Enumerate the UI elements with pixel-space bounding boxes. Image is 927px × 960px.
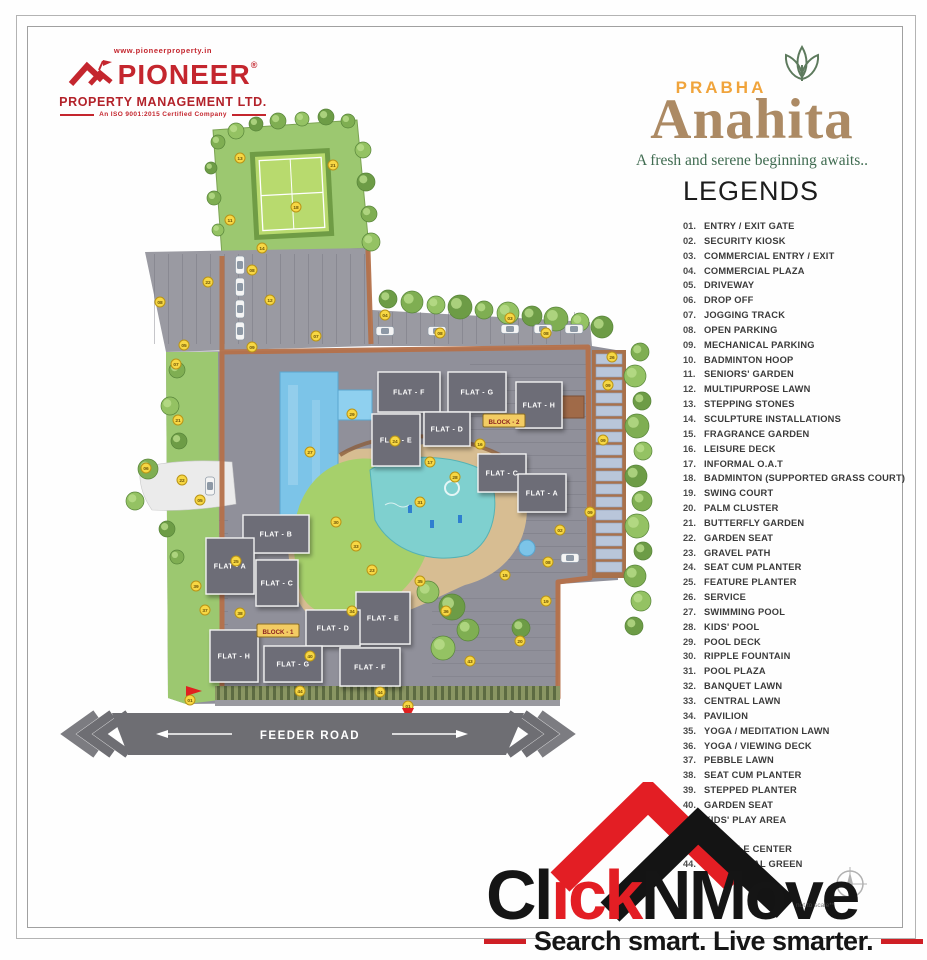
legend-item-label: DROP OFF	[704, 295, 753, 305]
clicknmove-tagline: Search smart. Live smarter.	[480, 926, 927, 957]
pioneer-website: www.pioneerproperty.in	[44, 46, 282, 55]
legend-item-number: 01.	[683, 221, 704, 231]
tree-icon	[159, 521, 175, 537]
flat-label: FLAT - H	[523, 403, 556, 410]
svg-text:31: 31	[417, 500, 423, 506]
flat-label: FLAT - A	[526, 491, 558, 498]
map-marker: 29	[347, 409, 357, 419]
legend-item: 23.GRAVEL PATH	[683, 548, 915, 563]
legend-item-label: LEISURE DECK	[704, 444, 776, 454]
site-plan-poster: www.pioneerproperty.in PIONEER® PROPERTY…	[0, 0, 927, 960]
svg-text:04: 04	[382, 313, 388, 319]
legend-item-label: POOL DECK	[704, 637, 761, 647]
tree-icon	[633, 392, 651, 410]
map-marker: 44	[295, 686, 305, 696]
svg-text:12: 12	[267, 298, 273, 304]
tree-icon	[401, 291, 423, 313]
tree-icon	[457, 619, 479, 641]
legend-item: 28.KIDS' POOL	[683, 622, 915, 637]
map-marker: 38	[235, 608, 245, 618]
tree-icon	[170, 550, 184, 564]
legend-item: 07.JOGGING TRACK	[683, 310, 915, 325]
legends-list: 01.ENTRY / EXIT GATE02.SECURITY KIOSK03.…	[683, 221, 915, 874]
tree-icon	[379, 290, 397, 308]
svg-text:30: 30	[333, 520, 339, 526]
legend-item-label: MULTIPURPOSE LAWN	[704, 384, 811, 394]
building-flat: FLAT - A	[518, 474, 566, 512]
flat-label: FLAT - F	[354, 665, 386, 672]
map-marker: 12	[265, 295, 275, 305]
tree-icon	[624, 365, 646, 387]
legend-item-number: 33.	[683, 696, 704, 706]
building-flat: FLAT - F	[340, 648, 400, 686]
map-marker: 05	[179, 340, 189, 350]
clicknmove-watermark: ClickNMove not to scale** Search smart. …	[480, 780, 927, 960]
legend-item: 17.INFORMAL O.A.T	[683, 459, 915, 474]
pioneer-certification: An ISO 9001:2015 Certified Company	[44, 111, 282, 118]
svg-text:24: 24	[392, 439, 398, 445]
tree-icon	[475, 301, 493, 319]
svg-text:08: 08	[157, 300, 163, 306]
flat-label: FLAT - C	[486, 471, 519, 478]
svg-text:16: 16	[477, 442, 483, 448]
map-marker: 09	[603, 380, 613, 390]
legend-item: 19.SWING COURT	[683, 488, 915, 503]
tree-icon	[362, 233, 380, 251]
map-marker: 09	[585, 507, 595, 517]
map-marker: 22	[203, 277, 213, 287]
tree-icon	[161, 397, 179, 415]
legend-item-label: PALM CLUSTER	[704, 503, 779, 513]
building-flat: FLAT - G	[264, 646, 322, 682]
svg-text:09: 09	[587, 510, 593, 516]
legend-item: 30.RIPPLE FOUNTAIN	[683, 651, 915, 666]
legend-item: 37.PEBBLE LAWN	[683, 755, 915, 770]
map-marker: 33	[351, 541, 361, 551]
legend-item: 21.BUTTERFLY GARDEN	[683, 518, 915, 533]
legend-item: 36.YOGA / VIEWING DECK	[683, 741, 915, 756]
legend-item: 09.MECHANICAL PARKING	[683, 340, 915, 355]
legend-item-number: 32.	[683, 681, 704, 691]
legend-item-number: 07.	[683, 310, 704, 320]
car-icon	[565, 325, 583, 334]
legend-item-label: YOGA / MEDITATION LAWN	[704, 726, 830, 736]
svg-text:09: 09	[600, 438, 606, 444]
legend-item-number: 09.	[683, 340, 704, 350]
map-marker: 44	[375, 687, 385, 697]
legend-item: 08.OPEN PARKING	[683, 325, 915, 340]
tree-icon	[631, 343, 649, 361]
map-marker: 28	[450, 472, 460, 482]
road-chevrons-right	[508, 714, 568, 754]
building-flat: FLAT - E	[356, 592, 410, 644]
map-marker: 19	[541, 596, 551, 606]
legends-panel: LEGENDS 01.ENTRY / EXIT GATE02.SECURITY …	[683, 176, 915, 874]
tree-icon	[357, 173, 375, 191]
map-marker: 08	[541, 328, 551, 338]
legend-item: 31.POOL PLAZA	[683, 666, 915, 681]
tree-icon	[631, 591, 651, 611]
car-icon	[206, 477, 215, 495]
legend-item-label: MECHANICAL PARKING	[704, 340, 815, 350]
map-marker: 08	[435, 328, 445, 338]
svg-text:03: 03	[507, 316, 513, 322]
tree-icon	[295, 112, 309, 126]
svg-text:22: 22	[205, 280, 211, 286]
map-marker: 08	[155, 297, 165, 307]
building-flat: FLAT - D	[424, 412, 470, 446]
tree-icon	[211, 135, 225, 149]
legend-item-label: SEAT CUM PLANTER	[704, 770, 802, 780]
legend-item: 03.COMMERCIAL ENTRY / EXIT	[683, 251, 915, 266]
tree-icon	[212, 224, 224, 236]
svg-text:11: 11	[227, 218, 232, 224]
legend-item: 11.SENIORS' GARDEN	[683, 369, 915, 384]
svg-text:44: 44	[377, 690, 383, 696]
legend-item-label: RIPPLE FOUNTAIN	[704, 651, 791, 661]
map-marker: 02	[555, 525, 565, 535]
tree-icon	[171, 433, 187, 449]
legend-item-number: 20.	[683, 503, 704, 513]
map-marker: 25	[231, 556, 241, 566]
map-marker: 20	[515, 636, 525, 646]
map-marker: 04	[380, 310, 390, 320]
legend-item-number: 05.	[683, 280, 704, 290]
flat-label: FLAT - E	[367, 616, 399, 623]
svg-text:21: 21	[330, 163, 336, 169]
pioneer-house-icon	[68, 56, 114, 93]
svg-text:23: 23	[369, 568, 375, 574]
svg-text:21: 21	[175, 418, 181, 424]
legend-item-number: 38.	[683, 770, 704, 780]
legend-item-number: 06.	[683, 295, 704, 305]
svg-text:14: 14	[259, 246, 265, 252]
legend-item: 15.FRAGRANCE GARDEN	[683, 429, 915, 444]
map-marker: 31	[415, 497, 425, 507]
legend-item-label: SERVICE	[704, 592, 746, 602]
svg-text:18: 18	[293, 205, 299, 211]
tree-icon	[624, 565, 646, 587]
tree-icon	[591, 316, 613, 338]
map-marker: 15	[500, 570, 510, 580]
svg-text:40: 40	[307, 654, 313, 660]
map-marker: 22	[177, 475, 187, 485]
legend-item: 06.DROP OFF	[683, 295, 915, 310]
car-icon	[236, 256, 245, 274]
map-marker: 05	[195, 495, 205, 505]
building-flat: FLAT - G	[448, 372, 506, 412]
tree-icon	[427, 296, 445, 314]
legend-item-label: SCULPTURE INSTALLATIONS	[704, 414, 841, 424]
map-marker: 11	[225, 215, 235, 225]
legend-item-label: GRAVEL PATH	[704, 548, 771, 558]
car-icon	[236, 278, 245, 296]
flat-label: FLAT - G	[276, 662, 309, 669]
legend-item-number: 37.	[683, 755, 704, 765]
tree-icon	[625, 514, 649, 538]
legend-item: 32.BANQUET LAWN	[683, 681, 915, 696]
map-marker: 03	[505, 313, 515, 323]
map-marker: 30	[331, 517, 341, 527]
legend-item-label: SENIORS' GARDEN	[704, 369, 794, 379]
legend-item-number: 26.	[683, 592, 704, 602]
legend-item: 24.SEAT CUM PLANTER	[683, 562, 915, 577]
block-tag-label: BLOCK - 2	[489, 419, 520, 426]
legend-item: 10.BADMINTON HOOP	[683, 355, 915, 370]
legend-item-number: 12.	[683, 384, 704, 394]
legend-item-number: 14.	[683, 414, 704, 424]
legend-item-number: 35.	[683, 726, 704, 736]
map-marker: 09	[247, 342, 257, 352]
legend-item-label: BADMINTON (SUPPORTED GRASS COURT)	[704, 473, 905, 483]
legend-item-label: SWING COURT	[704, 488, 773, 498]
svg-text:17: 17	[427, 460, 433, 466]
building-flat: FLAT - H	[210, 630, 258, 682]
svg-text:09: 09	[249, 345, 255, 351]
legend-item-label: BANQUET LAWN	[704, 681, 782, 691]
map-marker: 37	[200, 605, 210, 615]
tree-icon	[634, 542, 652, 560]
flat-label: FLAT - D	[431, 427, 464, 434]
map-marker: 23	[367, 565, 377, 575]
map-marker: 16	[475, 439, 485, 449]
block-tag: BLOCK - 2	[483, 414, 525, 427]
svg-text:29: 29	[349, 412, 355, 418]
svg-text:09: 09	[605, 383, 611, 389]
tree-icon	[512, 619, 530, 637]
tree-icon	[431, 636, 455, 660]
tree-icon	[361, 206, 377, 222]
legend-item: 25.FEATURE PLANTER	[683, 577, 915, 592]
legend-item-label: FEATURE PLANTER	[704, 577, 797, 587]
legend-item-number: 30.	[683, 651, 704, 661]
map-marker: 43	[465, 656, 475, 666]
park-area	[213, 120, 369, 256]
legend-item: 29.POOL DECK	[683, 637, 915, 652]
tree-icon	[625, 617, 643, 635]
map-marker: 40	[305, 651, 315, 661]
legend-item-number: 03.	[683, 251, 704, 261]
legend-item-number: 08.	[683, 325, 704, 335]
legend-item-number: 31.	[683, 666, 704, 676]
legend-item-label: OPEN PARKING	[704, 325, 778, 335]
legend-item-label: STEPPING STONES	[704, 399, 795, 409]
ripple-fountain	[519, 540, 535, 556]
legend-item-label: COMMERCIAL PLAZA	[704, 266, 805, 276]
legend-item: 14.SCULPTURE INSTALLATIONS	[683, 414, 915, 429]
clicknmove-wordmark: ClickNMove	[486, 860, 858, 930]
map-marker: 08	[247, 265, 257, 275]
map-marker: 13	[235, 153, 245, 163]
svg-text:15: 15	[502, 573, 508, 579]
boundary-hedge	[215, 686, 560, 702]
tree-icon	[634, 442, 652, 460]
legend-item: 04.COMMERCIAL PLAZA	[683, 266, 915, 281]
legend-item-label: GARDEN SEAT	[704, 533, 773, 543]
legend-item-label: POOL PLAZA	[704, 666, 766, 676]
legend-item: 12.MULTIPURPOSE LAWN	[683, 384, 915, 399]
legend-item: 22.GARDEN SEAT	[683, 533, 915, 548]
site-plan-map: FLAT - FFLAT - GFLAT - HFLAT - EFLAT - D…	[60, 95, 670, 775]
map-marker: 21	[173, 415, 183, 425]
tree-icon	[249, 117, 263, 131]
registered-mark: ®	[251, 60, 259, 70]
map-marker: 01	[185, 695, 195, 705]
tree-icon	[522, 306, 542, 326]
legend-item-label: BADMINTON HOOP	[704, 355, 793, 365]
map-marker: 26	[607, 352, 617, 362]
legend-item-number: 28.	[683, 622, 704, 632]
svg-text:34: 34	[349, 609, 355, 615]
legend-item: 20.PALM CLUSTER	[683, 503, 915, 518]
legend-item-number: 34.	[683, 711, 704, 721]
legend-item-number: 16.	[683, 444, 704, 454]
legend-item-number: 11.	[683, 369, 704, 379]
legend-item-number: 24.	[683, 562, 704, 572]
tree-icon	[632, 491, 652, 511]
legend-item-label: YOGA / VIEWING DECK	[704, 741, 812, 751]
feeder-road: FEEDER ROAD	[68, 713, 568, 755]
block-tag: BLOCK - 1	[257, 624, 299, 637]
legend-item-number: 27.	[683, 607, 704, 617]
legend-item: 26.SERVICE	[683, 592, 915, 607]
tree-icon	[355, 142, 371, 158]
flat-label: FLAT - A	[214, 564, 246, 571]
map-marker: 34	[347, 606, 357, 616]
legend-item-label: DRIVEWAY	[704, 280, 754, 290]
building-flat: FLAT - F	[378, 372, 440, 412]
car-icon	[501, 325, 519, 334]
svg-text:43: 43	[467, 659, 473, 665]
svg-text:13: 13	[237, 156, 243, 162]
legend-item: 27.SWIMMING POOL	[683, 607, 915, 622]
tree-icon	[625, 414, 649, 438]
project-tagline: A fresh and serene beginning awaits..	[612, 152, 892, 170]
svg-text:27: 27	[307, 450, 313, 456]
legend-item: 35.YOGA / MEDITATION LAWN	[683, 726, 915, 741]
map-marker: 07	[171, 359, 181, 369]
map-marker: 27	[305, 447, 315, 457]
svg-text:05: 05	[197, 498, 203, 504]
legend-item-number: 21.	[683, 518, 704, 528]
svg-text:25: 25	[233, 559, 239, 565]
road-chevrons-left	[68, 714, 128, 754]
legend-item: 01.ENTRY / EXIT GATE	[683, 221, 915, 236]
legend-item: 16.LEISURE DECK	[683, 444, 915, 459]
svg-text:20: 20	[517, 639, 523, 645]
tree-icon	[228, 123, 244, 139]
map-marker: 35	[415, 576, 425, 586]
map-marker: 07	[311, 331, 321, 341]
feeder-road-label: FEEDER ROAD	[260, 730, 360, 742]
block-tag-label: BLOCK - 1	[263, 629, 294, 636]
flat-label: FLAT - C	[261, 581, 294, 588]
legend-item-number: 04.	[683, 266, 704, 276]
tree-icon	[126, 492, 144, 510]
legend-item-label: JOGGING TRACK	[704, 310, 785, 320]
svg-text:28: 28	[452, 475, 458, 481]
project-name: Anahita	[612, 94, 892, 146]
not-to-scale-note: not to scale**	[796, 902, 834, 909]
svg-text:44: 44	[297, 689, 303, 695]
svg-text:36: 36	[443, 609, 449, 615]
legends-title: LEGENDS	[683, 176, 915, 207]
tree-icon	[625, 465, 647, 487]
map-marker: 24	[390, 436, 400, 446]
car-icon	[376, 327, 394, 336]
svg-text:08: 08	[437, 331, 443, 337]
legend-item-number: 22.	[683, 533, 704, 543]
flat-label: FLAT - H	[218, 654, 251, 661]
car-icon	[236, 322, 245, 340]
legend-item-label: SWIMMING POOL	[704, 607, 785, 617]
pioneer-name: PIONEER®	[118, 61, 259, 89]
map-marker: 08	[543, 557, 553, 567]
map-marker: 36	[441, 606, 451, 616]
legend-item-label: SEAT CUM PLANTER	[704, 562, 802, 572]
legend-item-label: FRAGRANCE GARDEN	[704, 429, 809, 439]
legend-item-number: 13.	[683, 399, 704, 409]
svg-text:08: 08	[249, 268, 255, 274]
svg-text:19: 19	[543, 599, 549, 605]
flat-label: FLAT - G	[460, 390, 493, 397]
map-marker: 18	[291, 202, 301, 212]
svg-text:08: 08	[543, 331, 549, 337]
legend-item-number: 02.	[683, 236, 704, 246]
car-icon	[236, 300, 245, 318]
svg-text:02: 02	[557, 528, 563, 534]
map-marker: 06	[141, 463, 151, 473]
tree-icon	[207, 191, 221, 205]
project-logo: PRABHA Anahita A fresh and serene beginn…	[612, 42, 892, 170]
legend-item-number: 29.	[683, 637, 704, 647]
svg-text:37: 37	[202, 608, 208, 614]
legend-item: 13.STEPPING STONES	[683, 399, 915, 414]
map-marker: 17	[425, 457, 435, 467]
svg-text:06: 06	[143, 466, 149, 472]
tree-icon	[341, 114, 355, 128]
flat-label: FLAT - B	[260, 532, 293, 539]
flat-label: FLAT - F	[393, 390, 425, 397]
svg-text:08: 08	[545, 560, 551, 566]
legend-item-number: 18.	[683, 473, 704, 483]
map-marker: 09	[598, 435, 608, 445]
svg-text:26: 26	[609, 355, 615, 361]
legend-item-number: 19.	[683, 488, 704, 498]
legend-item-number: 25.	[683, 577, 704, 587]
tree-icon	[205, 162, 217, 174]
legend-item-number: 36.	[683, 741, 704, 751]
svg-text:35: 35	[417, 579, 423, 585]
map-marker: 21	[328, 160, 338, 170]
svg-text:01: 01	[187, 698, 193, 704]
svg-text:38: 38	[237, 611, 243, 617]
svg-text:33: 33	[353, 544, 359, 550]
legend-item-label: COMMERCIAL ENTRY / EXIT	[704, 251, 834, 261]
legend-item-number: 10.	[683, 355, 704, 365]
legend-item: 33.CENTRAL LAWN	[683, 696, 915, 711]
building-flat: FLAT - A	[206, 538, 254, 594]
flat-label: FLAT - D	[317, 626, 350, 633]
legend-item-number: 15.	[683, 429, 704, 439]
pioneer-logo: www.pioneerproperty.in PIONEER® PROPERTY…	[44, 46, 282, 118]
svg-text:05: 05	[181, 343, 187, 349]
car-icon	[561, 554, 579, 563]
tree-icon	[318, 109, 334, 125]
svg-text:07: 07	[313, 334, 319, 340]
map-marker: 14	[257, 243, 267, 253]
legend-item-label: KIDS' POOL	[704, 622, 759, 632]
